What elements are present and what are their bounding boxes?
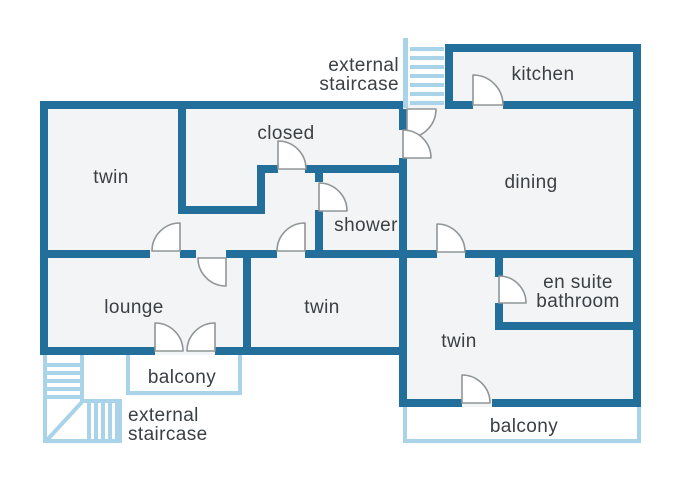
wall-segment — [492, 399, 641, 407]
wall-segment — [399, 158, 407, 407]
stair-turn-diagonal — [47, 402, 82, 440]
wall-segment — [40, 101, 48, 355]
wall-segment — [495, 322, 641, 330]
stair-edge — [43, 355, 47, 443]
label-staircase-bottom-line1: external — [128, 405, 199, 426]
label-twin-top-left: twin — [93, 167, 128, 188]
stair-tread — [47, 379, 80, 383]
stair-tread — [410, 101, 444, 105]
stair-edge — [80, 355, 84, 403]
wall-segment — [465, 250, 641, 258]
label-shower: shower — [334, 215, 398, 236]
stair-edge — [80, 399, 122, 403]
label-staircase-bottom-line2: staircase — [128, 424, 208, 445]
label-staircase-top-line2: staircase — [319, 74, 399, 95]
stair-tread — [115, 403, 119, 439]
label-twin-middle: twin — [304, 297, 339, 318]
wall-segment — [243, 250, 251, 355]
wall-segment — [178, 206, 265, 214]
wall-segment — [180, 250, 196, 258]
wall-segment — [178, 101, 186, 214]
wall-segment — [40, 101, 403, 109]
wall-segment — [399, 399, 462, 407]
balcony-edge — [126, 355, 130, 395]
wall-segment — [40, 347, 155, 355]
stair-tread — [410, 83, 444, 87]
stair-tread — [47, 387, 80, 391]
label-staircase-top-line1: external — [328, 55, 399, 76]
wall-segment — [445, 44, 641, 52]
label-balcony-right: balcony — [490, 416, 558, 437]
stair-tread — [410, 74, 444, 78]
stair-tread — [47, 395, 80, 399]
stair-tread — [410, 92, 444, 96]
label-dining: dining — [504, 172, 557, 193]
stair-tread — [101, 403, 105, 439]
wall-segment — [399, 109, 407, 130]
wall-segment — [503, 101, 641, 109]
external-staircase-bottom — [43, 355, 122, 443]
wall-segment — [40, 250, 150, 258]
stair-tread — [47, 363, 80, 367]
label-kitchen: kitchen — [511, 64, 574, 85]
balcony-edge — [637, 407, 641, 443]
stair-tread — [410, 47, 444, 51]
wall-segment — [315, 165, 323, 182]
external-staircase-top — [403, 38, 444, 108]
stair-tread — [94, 403, 98, 439]
stair-tread — [87, 403, 91, 439]
wall-segment — [495, 250, 503, 277]
balcony-edge — [238, 355, 242, 395]
stair-tread — [47, 371, 80, 375]
wall-segment — [445, 44, 453, 109]
wall-segment — [257, 165, 265, 214]
wall-segment — [633, 44, 641, 407]
stair-edge — [43, 439, 122, 443]
balcony-edge — [403, 407, 407, 443]
label-twin-bottom-right: twin — [441, 331, 476, 352]
wall-segment — [226, 250, 277, 258]
floor-plan: twin closed shower kitchen dining lounge… — [0, 0, 696, 484]
stair-tread — [108, 403, 112, 439]
label-balcony-left: balcony — [148, 367, 216, 388]
balcony-edge — [403, 439, 641, 443]
label-lounge: lounge — [104, 297, 163, 318]
wall-segment — [315, 210, 323, 258]
label-closed: closed — [257, 123, 314, 144]
balcony-edge — [126, 391, 242, 395]
stair-tread — [410, 65, 444, 69]
stair-tread — [410, 56, 444, 60]
stair-edge — [403, 38, 408, 108]
label-ensuite-line1: en suite — [543, 272, 613, 293]
wall-segment — [495, 303, 503, 330]
label-ensuite-line2: bathroom — [536, 291, 619, 312]
